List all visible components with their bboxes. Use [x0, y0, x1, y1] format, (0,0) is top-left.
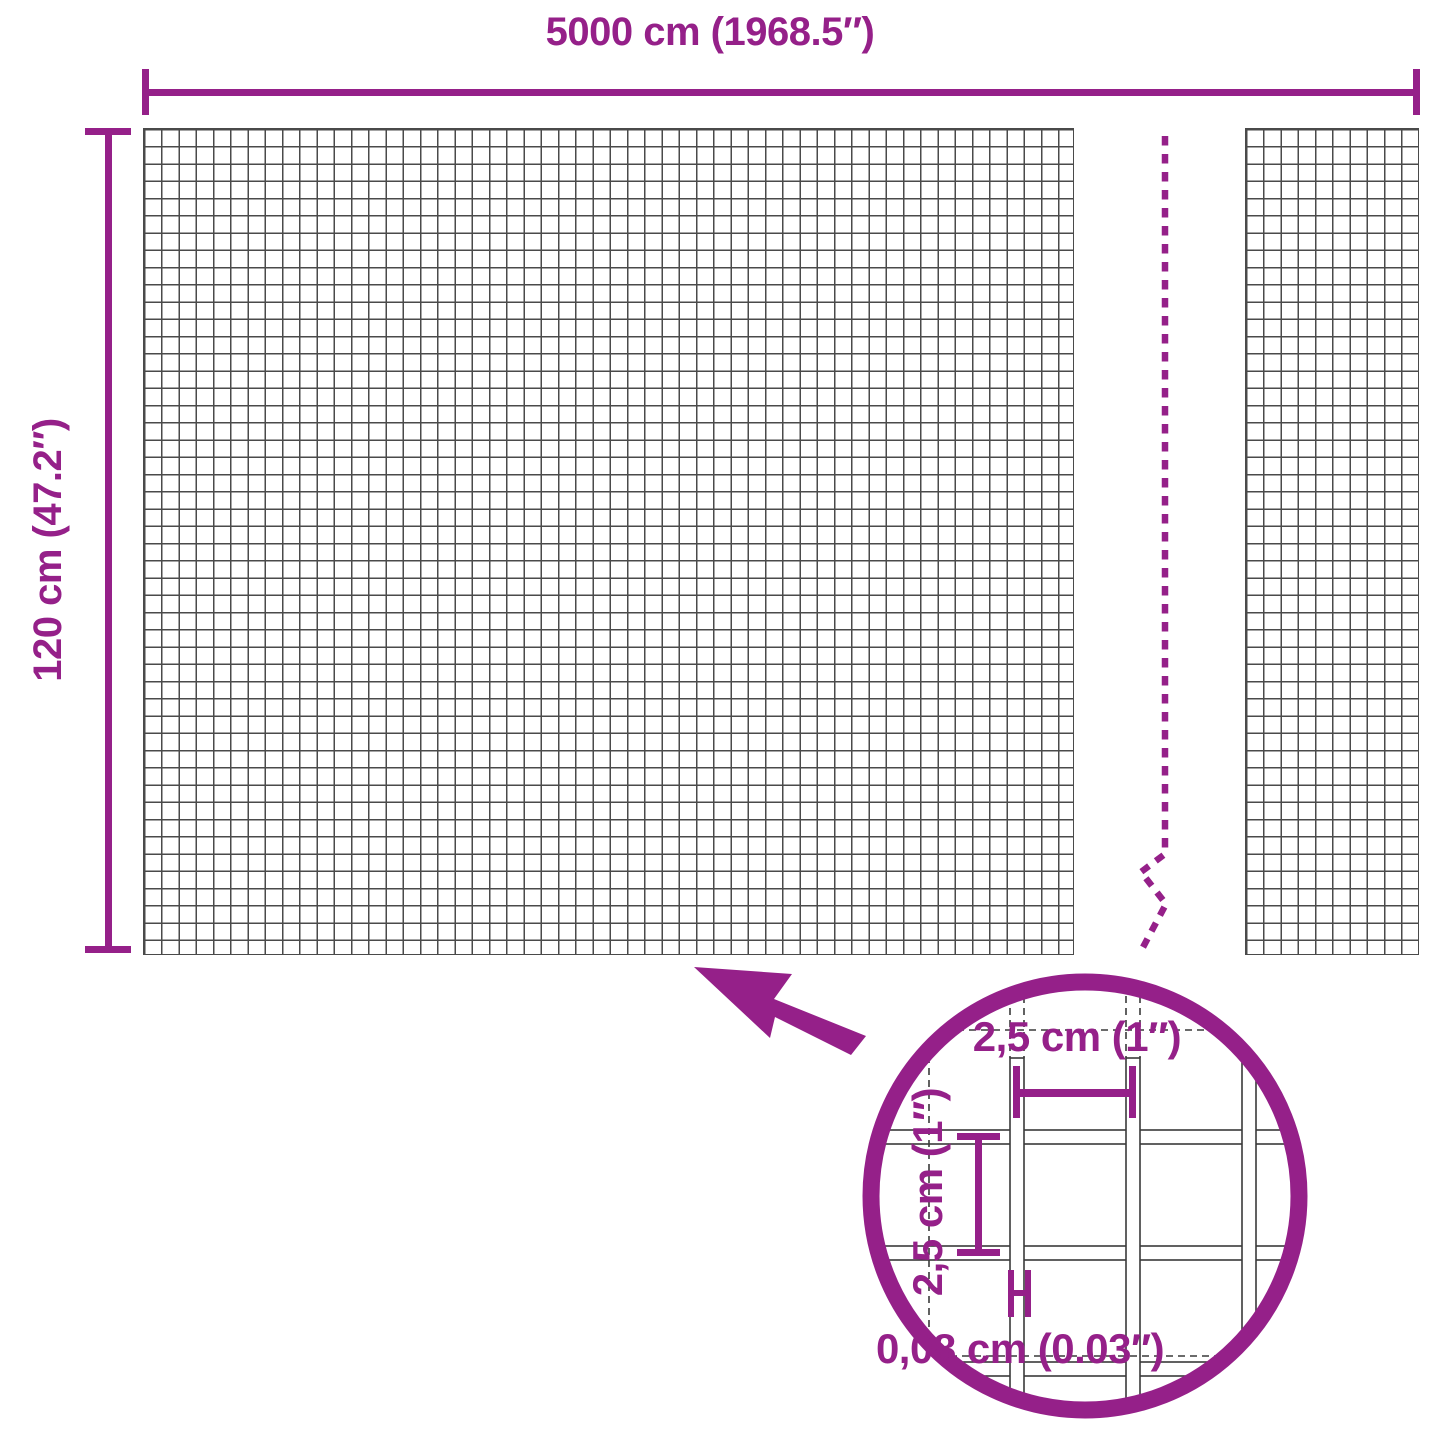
product-dimension-diagram: 5000 cm (1968.5″) 120 cm (47.2″)	[0, 0, 1445, 1445]
zoom-arrow-icon	[694, 967, 866, 1055]
mesh-opening-width-label: 2,5 cm (1″)	[927, 1014, 1227, 1060]
break-line-icon	[1141, 136, 1166, 951]
wire-thickness-label: 0,08 cm (0.03″)	[810, 1326, 1230, 1372]
mesh-opening-height-label: 2,5 cm (1″)	[905, 1042, 951, 1342]
diagram-overlay	[0, 0, 1445, 1445]
wire-vertical	[1242, 970, 1256, 1428]
